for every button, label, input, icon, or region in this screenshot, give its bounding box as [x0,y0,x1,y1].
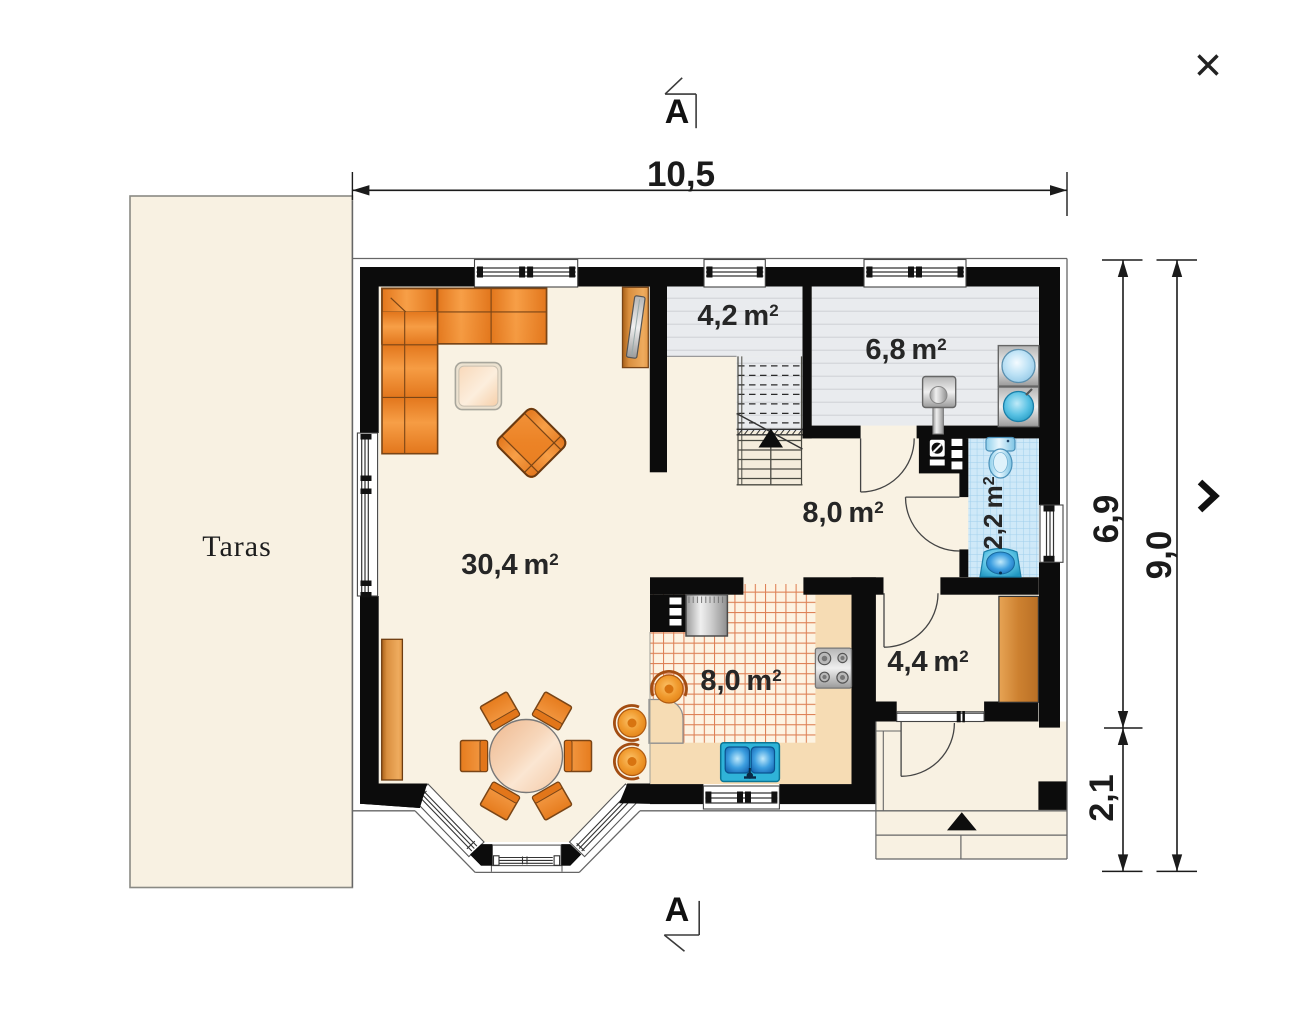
svg-text:9,0: 9,0 [1140,531,1179,580]
svg-text:10,5: 10,5 [647,155,715,194]
svg-text:Taras: Taras [202,530,272,563]
svg-text:8,0 m2: 8,0 m2 [700,665,781,697]
svg-text:A: A [665,891,690,929]
svg-text:6,9: 6,9 [1087,495,1126,544]
svg-text:6,8 m2: 6,8 m2 [865,334,946,366]
svg-text:A: A [665,93,690,131]
svg-text:8,0 m2: 8,0 m2 [802,497,883,529]
svg-text:4,2 m2: 4,2 m2 [697,300,778,332]
svg-text:2,1: 2,1 [1083,774,1121,821]
svg-text:30,4 m2: 30,4 m2 [461,549,559,581]
svg-text:2,2 m2: 2,2 m2 [978,476,1008,549]
svg-text:4,4 m2: 4,4 m2 [887,646,968,678]
